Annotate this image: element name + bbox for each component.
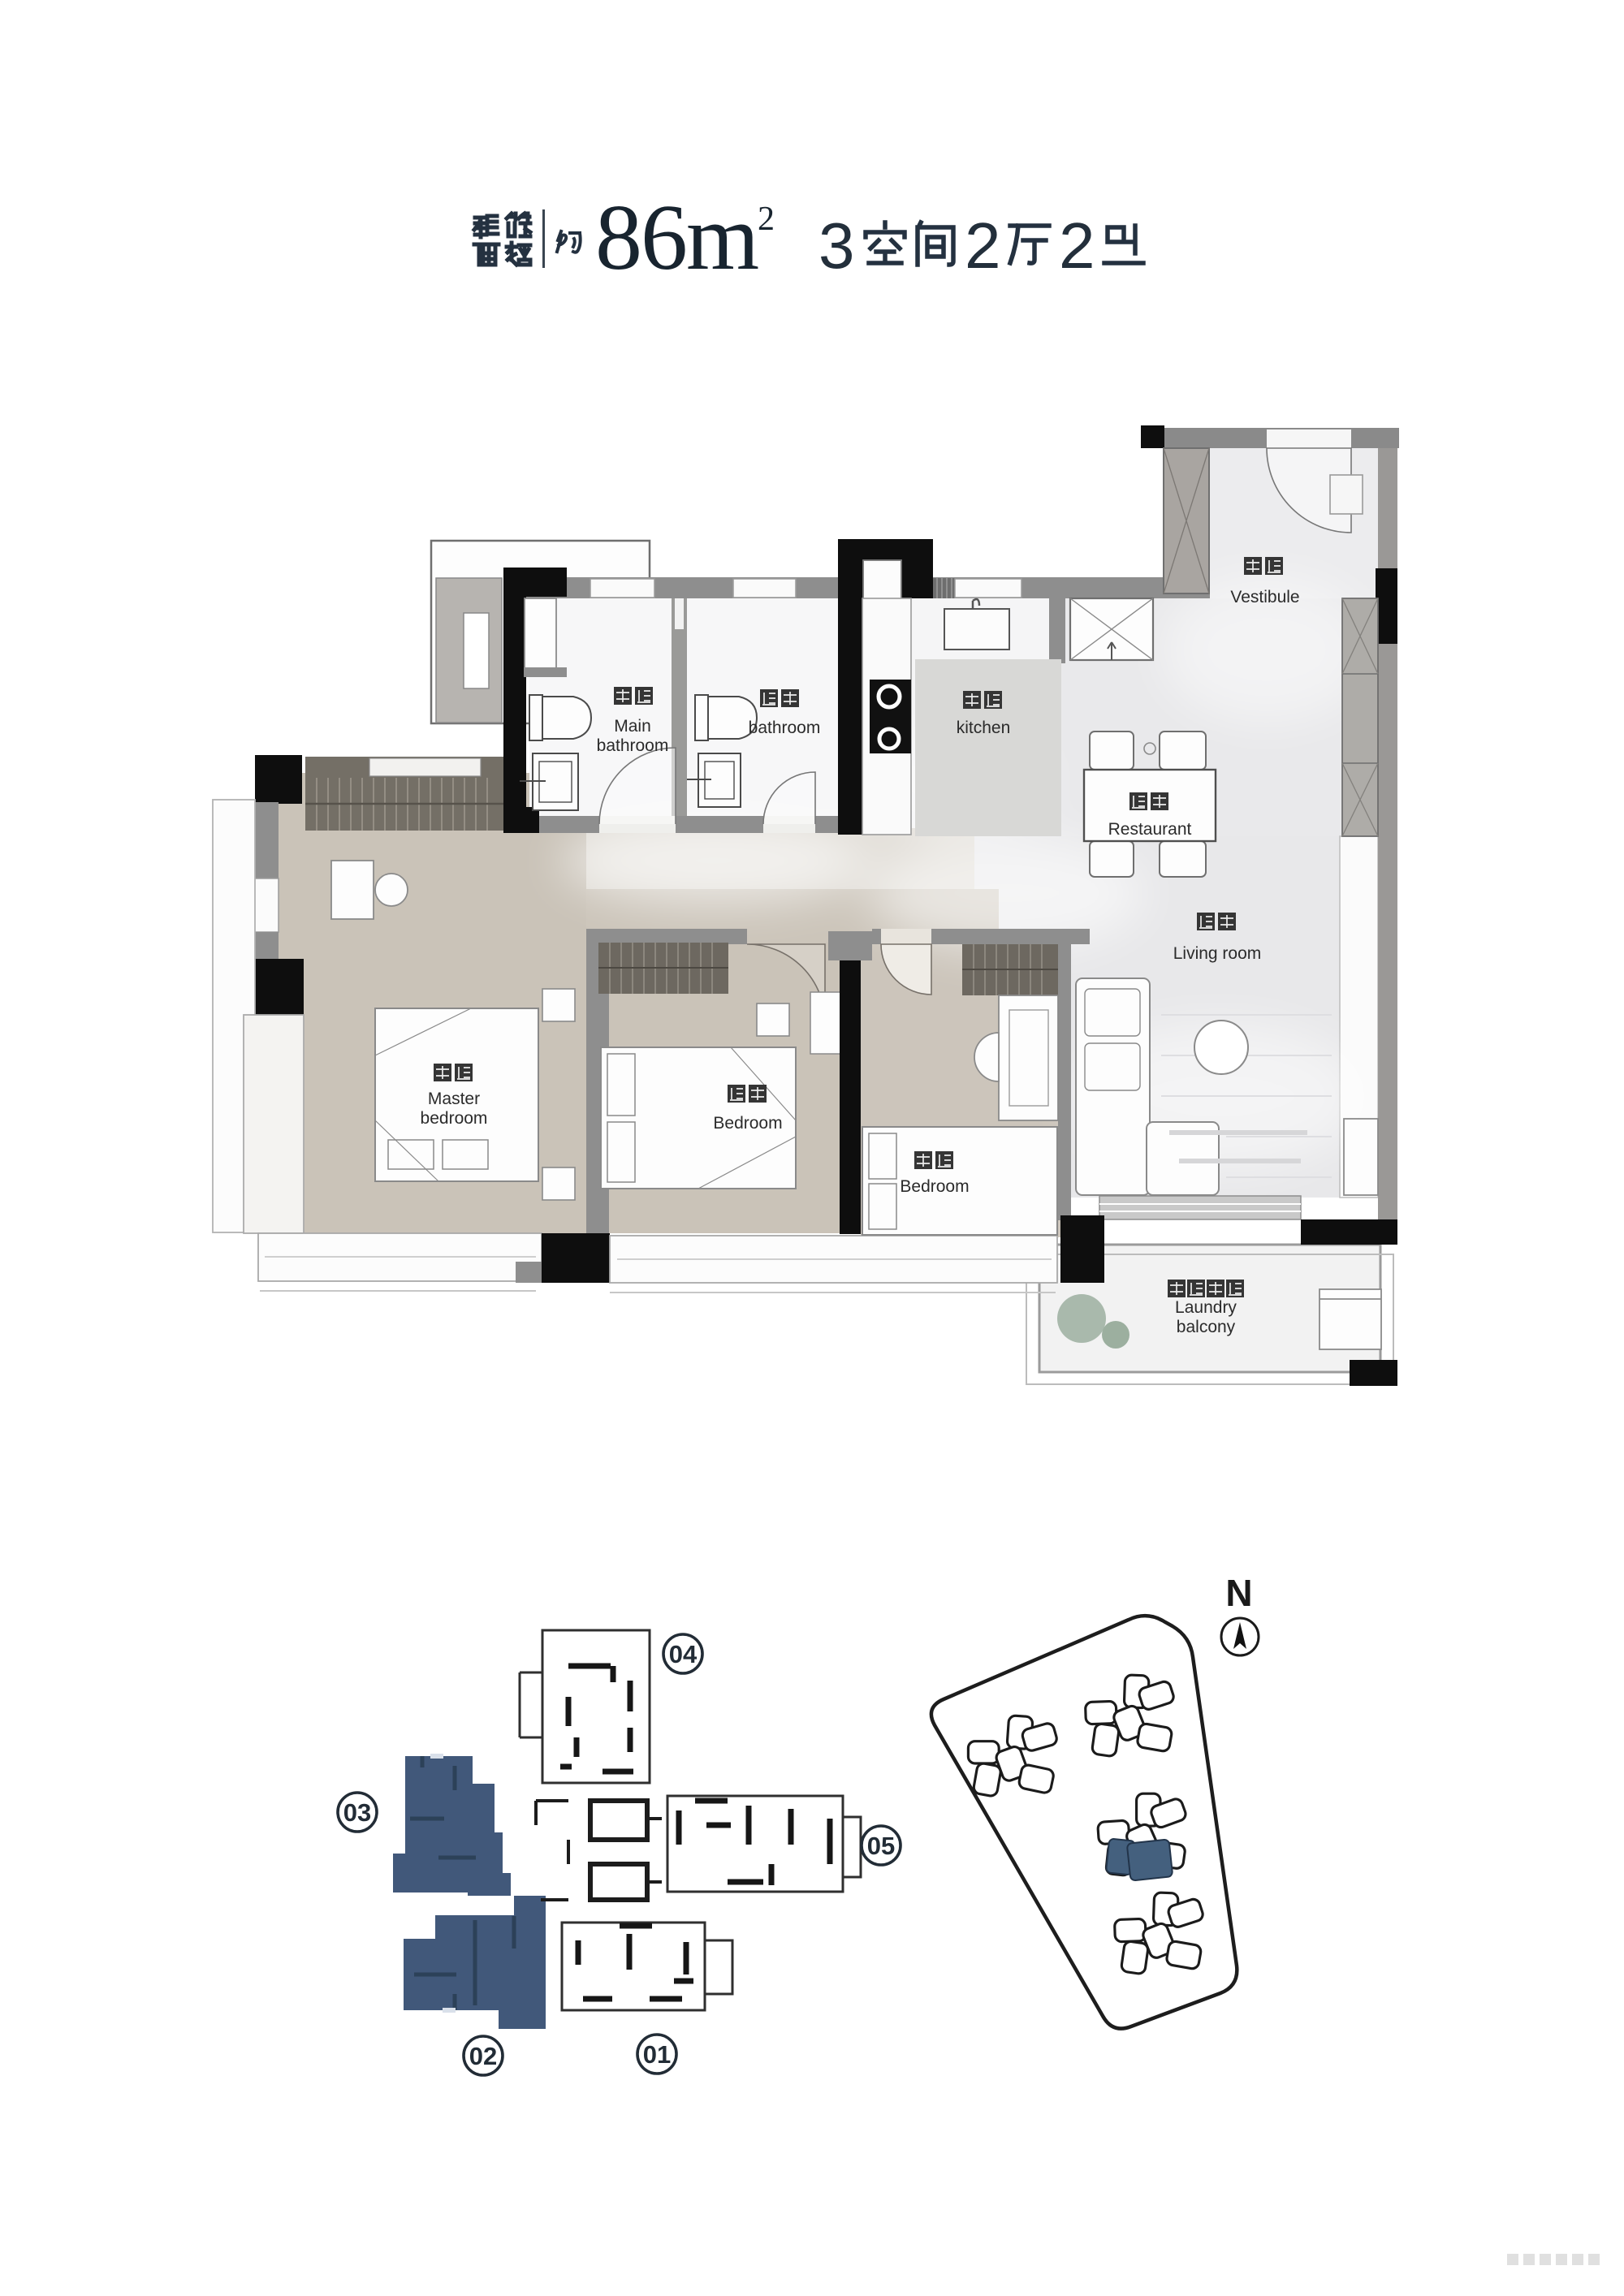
svg-text:Bedroom: Bedroom	[713, 1114, 782, 1133]
svg-text:01: 01	[643, 2040, 671, 2069]
svg-text:Bedroom: Bedroom	[900, 1177, 969, 1196]
svg-text:3: 3	[818, 209, 855, 282]
svg-text:Master: Master	[428, 1090, 480, 1108]
svg-text:bedroom: bedroom	[421, 1109, 488, 1128]
svg-text:2: 2	[758, 201, 775, 238]
svg-text:05: 05	[867, 1832, 895, 1860]
svg-text:Living room: Living room	[1173, 944, 1262, 963]
svg-text:2: 2	[1059, 209, 1095, 282]
svg-text:02: 02	[469, 2042, 497, 2070]
svg-text:86m: 86m	[595, 186, 758, 290]
svg-text:04: 04	[669, 1640, 698, 1668]
svg-text:Laundry: Laundry	[1175, 1298, 1237, 1317]
svg-text:Vestibule: Vestibule	[1230, 588, 1299, 606]
svg-text:N: N	[1225, 1572, 1252, 1614]
svg-text:2: 2	[965, 209, 1001, 282]
svg-text:Restaurant: Restaurant	[1108, 820, 1192, 839]
svg-text:Main: Main	[614, 717, 651, 736]
svg-text:bathroom: bathroom	[749, 719, 821, 737]
svg-text:balcony: balcony	[1177, 1318, 1236, 1336]
svg-text:03: 03	[343, 1798, 371, 1827]
svg-text:bathroom: bathroom	[597, 736, 669, 755]
svg-text:kitchen: kitchen	[957, 719, 1011, 737]
